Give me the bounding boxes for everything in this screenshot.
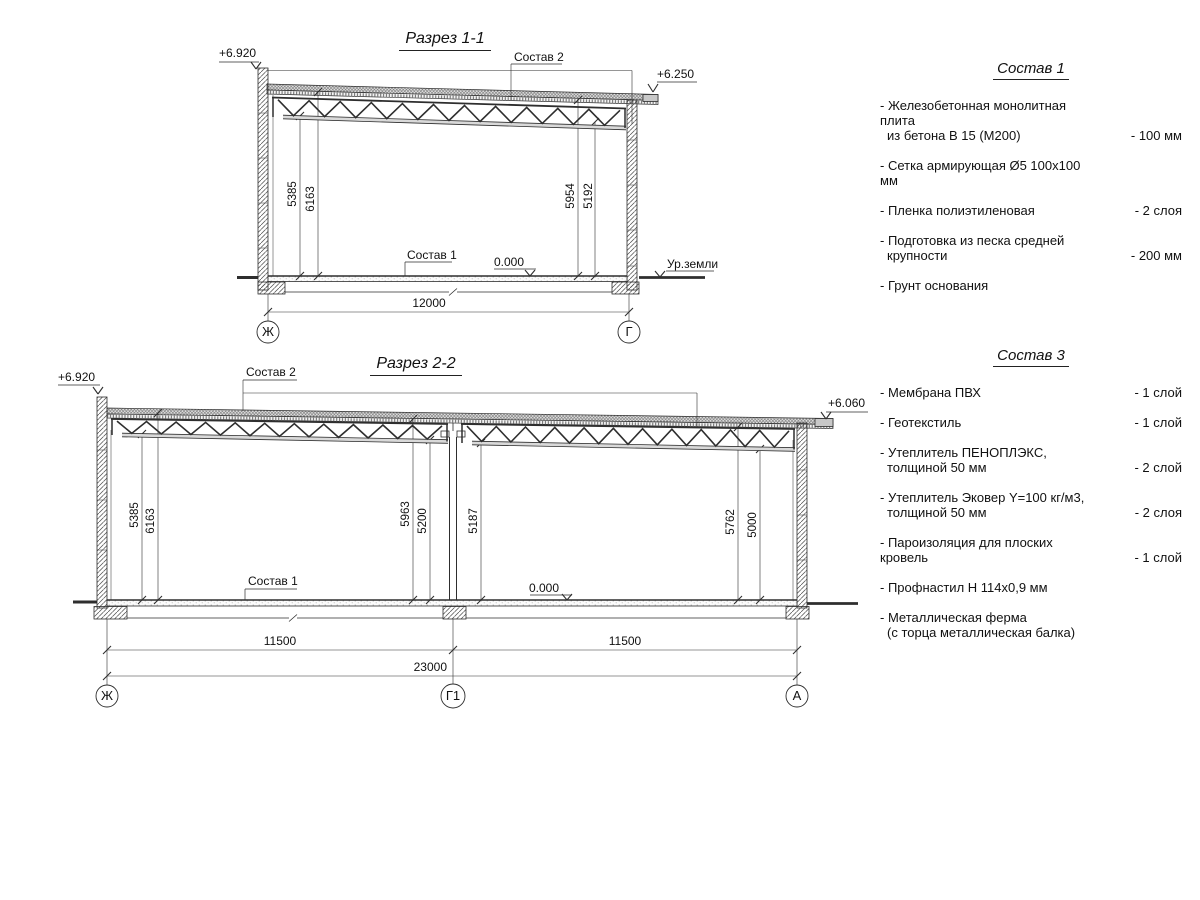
section2-dim-5200: 5200 bbox=[417, 496, 429, 546]
list-item: - Профнастил Н 114х0,9 мм bbox=[880, 580, 1182, 595]
list-item: - Пароизоляция для плоских кровель - 1 с… bbox=[880, 535, 1182, 565]
list-item: - Железобетонная монолитная плитаиз бето… bbox=[880, 98, 1182, 143]
section2-axis-zh: Ж bbox=[95, 688, 119, 703]
section2-axis-g1: Г1 bbox=[441, 688, 465, 703]
composition-1-title: Состав 1 bbox=[880, 60, 1182, 80]
list-item: - Подготовка из песка среднейкрупности -… bbox=[880, 233, 1182, 263]
section1-zero-level-label: 0.000 bbox=[494, 255, 524, 269]
section2-dim-5762: 5762 bbox=[725, 497, 737, 547]
section1-roof-callout: Состав 2 bbox=[514, 50, 564, 64]
section2-dim-6163: 6163 bbox=[145, 496, 157, 546]
section2-elevation-right-label: +6.060 bbox=[828, 396, 865, 410]
drawing-linework bbox=[58, 62, 868, 708]
list-item: - Утеплитель Эковер Y=100 кг/м3,толщиной… bbox=[880, 490, 1182, 520]
section2-span-left-dim: 11500 bbox=[250, 634, 310, 648]
section2-roof-callout: Состав 2 bbox=[246, 365, 296, 379]
section2-title: Разрез 2-2 bbox=[356, 355, 476, 376]
section1-ground-level-label: Ур.земли bbox=[667, 257, 718, 271]
section2-span-right-dim: 11500 bbox=[595, 634, 655, 648]
list-item: - Пленка полиэтиленовая - 2 слоя bbox=[880, 203, 1182, 218]
list-item: - Утеплитель ПЕНОПЛЭКС,толщиной 50 мм - … bbox=[880, 445, 1182, 475]
composition-3-title: Состав 3 bbox=[880, 347, 1182, 367]
section1-title: Разрез 1-1 bbox=[385, 30, 505, 51]
composition-1-panel: Состав 1 - Железобетонная монолитная пли… bbox=[880, 60, 1182, 308]
section1-dim-5192: 5192 bbox=[583, 171, 595, 221]
section1-dim-6163: 6163 bbox=[305, 174, 317, 224]
section1-dim-5385: 5385 bbox=[287, 169, 299, 219]
drawing-sheet: Разрез 1-1 +6.920 +6.250 Состав 2 Состав… bbox=[0, 0, 1200, 900]
section1-axis-g: Г bbox=[617, 324, 641, 339]
list-item: - Сетка армирующая Ø5 100х100 мм bbox=[880, 158, 1182, 188]
section2-dim-5000: 5000 bbox=[747, 500, 759, 550]
section2-dim-5385: 5385 bbox=[129, 490, 141, 540]
section2-span-total-dim: 23000 bbox=[377, 660, 447, 674]
section2-dim-5187: 5187 bbox=[468, 496, 480, 546]
list-item: - Металлическая ферма(с торца металличес… bbox=[880, 610, 1182, 640]
section1-axis-zh: Ж bbox=[256, 324, 280, 339]
section1-elevation-right-label: +6.250 bbox=[657, 67, 694, 81]
section2-axis-a: А bbox=[785, 688, 809, 703]
composition-3-panel: Состав 3 - Мембрана ПВХ - 1 слой - Геоте… bbox=[880, 347, 1182, 655]
section1-elevation-left-label: +6.920 bbox=[219, 46, 256, 60]
section2-dim-5963: 5963 bbox=[400, 489, 412, 539]
list-item: - Геотекстиль - 1 слой bbox=[880, 415, 1182, 430]
section1-span-dim: 12000 bbox=[399, 296, 459, 310]
list-item: - Мембрана ПВХ - 1 слой bbox=[880, 385, 1182, 400]
section2-floor-callout: Состав 1 bbox=[248, 574, 298, 588]
section1-floor-callout: Состав 1 bbox=[407, 248, 457, 262]
list-item: - Грунт основания bbox=[880, 278, 1182, 293]
section2-elevation-left-label: +6.920 bbox=[58, 370, 95, 384]
section2-zero-level-label: 0.000 bbox=[529, 581, 559, 595]
section1-dim-5954: 5954 bbox=[565, 171, 577, 221]
